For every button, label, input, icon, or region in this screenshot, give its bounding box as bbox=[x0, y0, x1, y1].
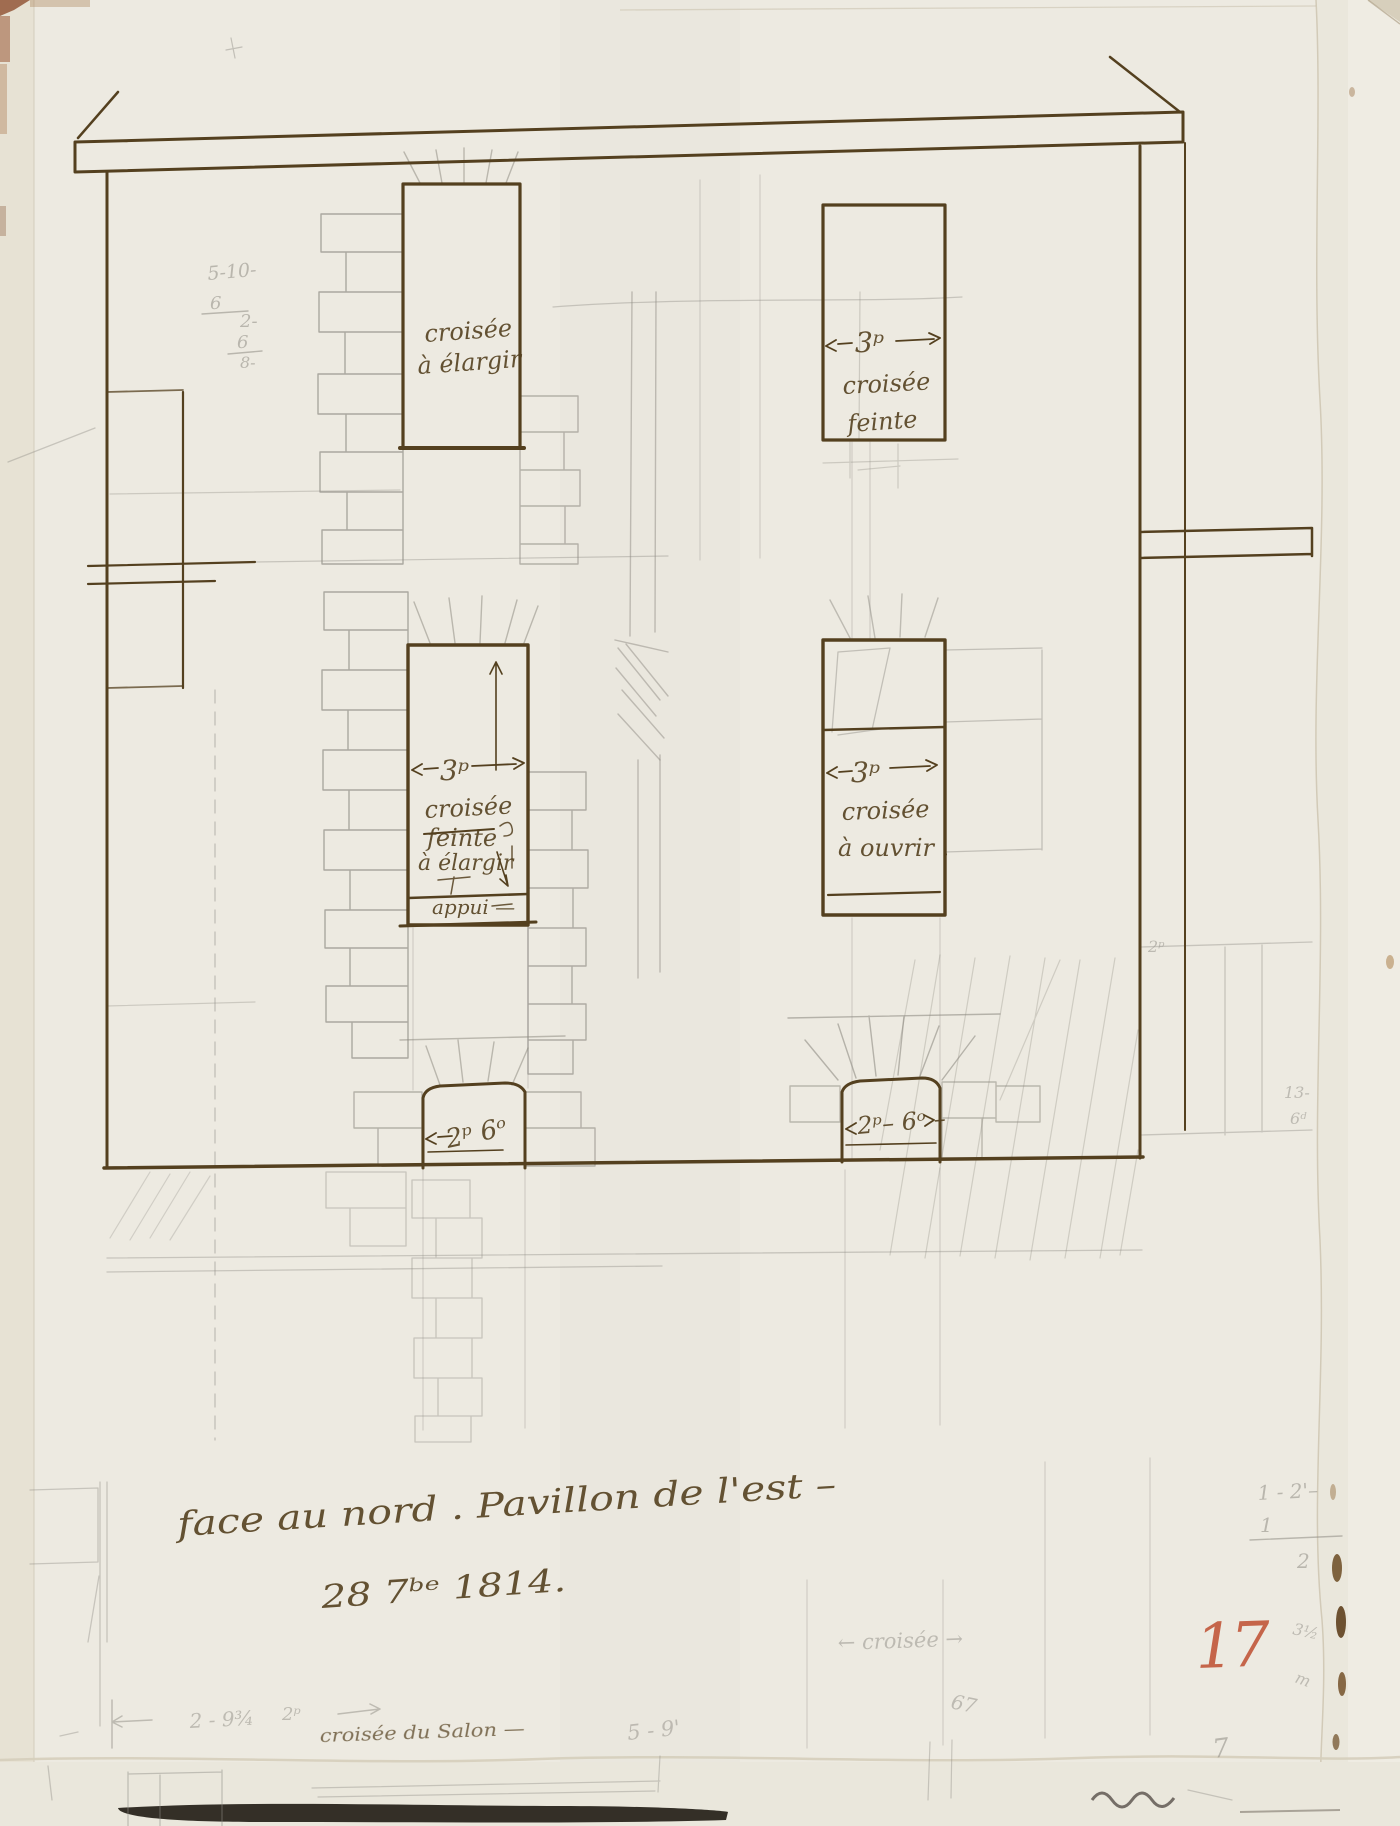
calc-line-5: 8- bbox=[240, 353, 256, 372]
annotation-middle-left-window-line2: à élargir bbox=[418, 851, 515, 876]
fraction-top: 1 - 2'– bbox=[1257, 1478, 1319, 1505]
bottom-dimension-value: 2 - 9¾ bbox=[188, 1706, 254, 1733]
calc-line-3: 2- bbox=[239, 311, 258, 332]
dimension-top-right-window: 3ᵖ bbox=[855, 326, 884, 359]
annotation-middle-right-window-line1: croisée bbox=[841, 795, 930, 826]
annotation-middle-left-window-sill: appui — bbox=[432, 895, 515, 919]
drawing-sheet: croisée à élargir 3ᵖ croisée feinte 3ᵖ c… bbox=[0, 0, 1400, 1826]
architectural-elevation-drawing: croisée à élargir 3ᵖ croisée feinte 3ᵖ c… bbox=[0, 0, 1400, 1826]
note-13: 13- bbox=[1284, 1083, 1310, 1102]
dimension-middle-right-window: 3ᵖ bbox=[851, 756, 880, 789]
annotation-top-right-window-line1: croisée bbox=[842, 367, 931, 400]
left-page-edge bbox=[0, 0, 34, 1826]
note-2p: 2ᵖ bbox=[1147, 937, 1165, 956]
dimension-middle-left-window: 3ᵖ bbox=[440, 754, 469, 787]
note-6d: 6ᵈ bbox=[1290, 1109, 1307, 1128]
annotation-top-right-window-line2: feinte bbox=[844, 405, 918, 438]
bottom-dimension-unit: 2ᵖ bbox=[281, 1704, 301, 1725]
annotation-middle-right-window-line2: à ouvrir . bbox=[838, 834, 949, 862]
page-number-red: 17 bbox=[1194, 1607, 1272, 1683]
calc-line-1: 5-10- bbox=[207, 259, 258, 285]
annotation-middle-left-window-line1: croisée bbox=[424, 791, 513, 824]
annotation-middle-left-window-struck: feinte bbox=[425, 824, 497, 852]
ghost-croisee-note: ← croisée → bbox=[837, 1627, 963, 1655]
calc-line-2: 6 bbox=[210, 293, 221, 314]
fraction-numerator: 1 bbox=[1260, 1513, 1273, 1537]
fraction-denominator: 2 bbox=[1296, 1549, 1310, 1573]
calc-line-4: 6 bbox=[237, 332, 248, 353]
